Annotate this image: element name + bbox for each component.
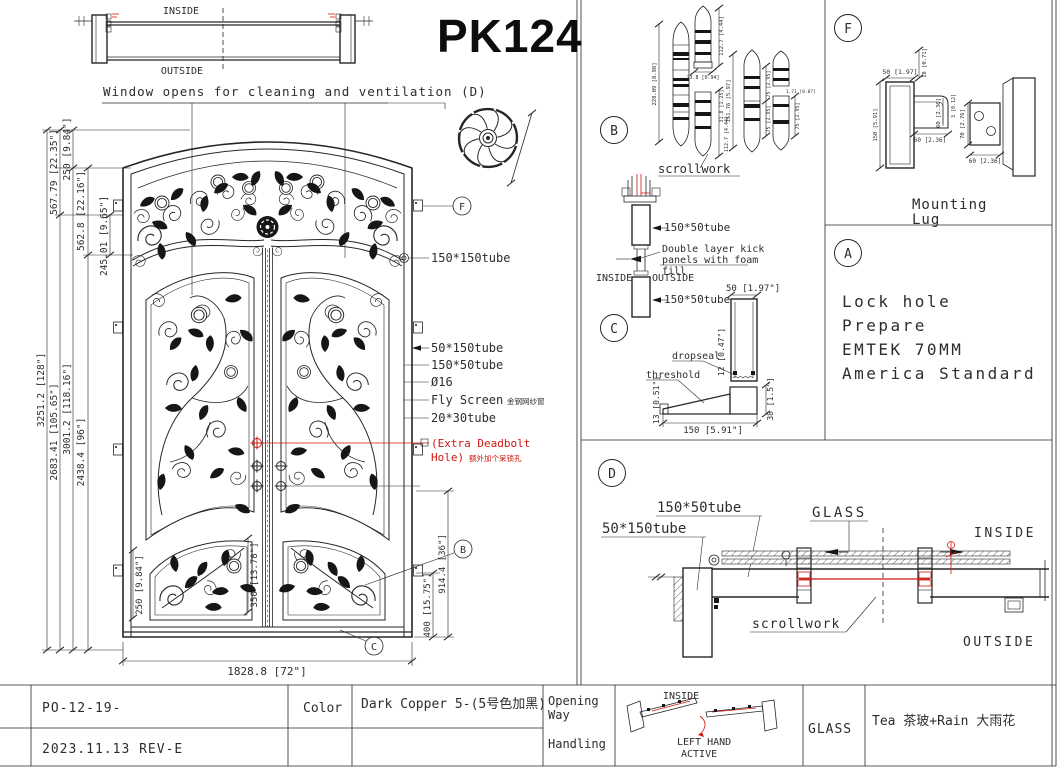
dim-245: 245.01 [9.65"] [99, 196, 110, 276]
callout-fly-screen: Fly Screen [431, 393, 503, 407]
panel-b-hinges: B 228.09 [8.98] 112.7 [4.44] 23.8 [0.94]… [601, 5, 816, 176]
hinge-dim-238: 23.8 [0.94] [686, 75, 719, 81]
tb-opening-1: Opening [548, 694, 599, 708]
deadbolt-note-line2: Hole) [431, 451, 464, 464]
panel-d-tube-v: 50*150tube [602, 521, 686, 537]
tb-color-value: Dark Copper 5-(5号色加黑) [361, 696, 546, 712]
panel-c-dim-12: 12 [0.47"] [717, 328, 726, 376]
marker-b: B [460, 545, 466, 556]
panel-c-dropseal: dropseal [672, 351, 720, 362]
tb-opening-diagram: INSIDE LEFT HAND ACTIVE [627, 691, 777, 760]
dim-400: 400 [15.75"] [423, 572, 433, 637]
panel-c-section: 150*50tube Double layer kick panels with… [596, 174, 780, 436]
panel-f-dim-60b: 60 [2.36] [914, 137, 947, 144]
tb-hand-1: LEFT HAND [677, 737, 731, 748]
plan-hinge-red-marks [112, 14, 335, 17]
panel-b-scrollwork: scrollwork [658, 162, 731, 176]
dim-567: 567.79 [22.35"] [49, 129, 60, 215]
panel-c-label: C [610, 322, 618, 337]
hinge-dim-171: 1.71 [0.07] [786, 89, 816, 95]
panel-f-dim-150: 150 [5.91] [873, 108, 879, 141]
callout-o16: Ø16 [431, 375, 453, 389]
panel-d-glass: GLASS [812, 505, 867, 521]
panel-f-dim-18: 18 [0.71] [922, 48, 928, 78]
title-block: PO-12-19- 2023.11.13 REV-E Color Dark Co… [0, 685, 1056, 766]
panel-d-tube-h: 150*50tube [657, 500, 741, 516]
panel-c-dim-13: 13 [0.51"] [652, 376, 661, 424]
hinge-dim-75b: 75 [2.95] [766, 105, 772, 132]
dim-250-top: 250 [9.84"] [62, 118, 73, 181]
marker-c: C [371, 642, 377, 653]
callout-50x150: 50*150tube [431, 341, 503, 355]
callout-150x150: 150*150tube [431, 251, 510, 265]
plan-inside-label: INSIDE [163, 6, 199, 17]
panel-a-line4: America Standard [842, 364, 1036, 383]
hinge-dim-75a: 75 [2.95] [766, 70, 772, 97]
plan-view: INSIDE OUTSIDE [74, 6, 373, 77]
lock-prep-marks [251, 437, 421, 493]
panel-d-outside: OUTSIDE [963, 635, 1035, 650]
dim-inner-250: 250 [9.84"] [135, 555, 145, 615]
hinge-dim-228: 228.09 [8.98] [652, 62, 658, 105]
panel-c-dim-38: 38 [1.5"] [766, 377, 775, 420]
tb-glass-label: GLASS [808, 722, 852, 737]
dim-562: 562.8 [22.16"] [76, 171, 87, 251]
plan-outside-label: OUTSIDE [161, 66, 203, 77]
deadbolt-note-line1: (Extra Deadbolt [431, 437, 530, 450]
panel-d-label: D [608, 467, 616, 482]
dim-914: 914.4 [36"] [438, 534, 448, 594]
tb-color-label: Color [303, 701, 342, 716]
panel-d-section: D 150*50tube 50*150tube GLASS INSIDE OUT… [599, 460, 1050, 658]
center-medallion [257, 216, 279, 238]
deadbolt-note-cn: 额外加个呆锁孔 [469, 453, 522, 463]
panel-f-caption-1: Mounting [912, 197, 987, 213]
callout-fly-screen-cn: 金钢网纱窗 [507, 396, 545, 406]
panel-f-label: F [844, 22, 852, 37]
panel-d-scrollwork: scrollwork [752, 617, 840, 632]
panel-c-outside: OUTSIDE [652, 273, 694, 284]
sheet-borders [577, 0, 1056, 766]
panel-a-line3: EMTEK 70MM [842, 340, 963, 359]
pinwheel-ornament [450, 100, 536, 186]
tb-po-number: PO-12-19- [42, 701, 121, 716]
panel-c-dim-150: 150 [5.91"] [683, 426, 743, 436]
tb-revision: 2023.11.13 REV-E [42, 742, 183, 757]
window-caption-text: Window opens for cleaning and ventilatio… [103, 84, 487, 99]
panel-a-lock-note: A Lock hole Prepare EMTEK 70MM America S… [835, 240, 1037, 384]
tb-hand-2: ACTIVE [681, 749, 717, 760]
dim-2683: 2683.41 [105.65"] [49, 383, 60, 480]
drawing-number: PK124 [437, 10, 583, 62]
panel-d-inside: INSIDE [974, 526, 1036, 541]
hinge-dim-75c: 75 [2.95] [795, 102, 801, 129]
cad-sheet: PK124 INSIDE OUTSIDE Window opens for cl… [0, 0, 1061, 768]
drawing-canvas: PK124 INSIDE OUTSIDE Window opens for cl… [0, 0, 1061, 768]
hinge-dim-151: 151.76 [5.97] [726, 79, 732, 122]
callout-20x30: 20*30tube [431, 411, 496, 425]
tb-opening-3: Handling [548, 737, 606, 751]
panel-f-dim-60a: 60 [2.36] [936, 98, 942, 128]
dim-width: 1828.8 [72"] [227, 665, 306, 678]
panel-f-dim-70: 70 [2.76] [960, 109, 966, 139]
panel-c-kick-note-1: Double layer kick [662, 244, 764, 255]
tb-glass-value: Tea 茶玻+Rain 大雨花 [872, 713, 1015, 729]
panel-b-label: B [610, 124, 618, 139]
dim-2438: 2438.4 [96"] [76, 418, 87, 487]
panel-a-line1: Lock hole [842, 292, 951, 311]
panel-f-dim-60c: 60 [2.36] [969, 158, 1002, 165]
callout-150x50: 150*50tube [431, 358, 503, 372]
dim-inner-350: 350 [13.78"] [250, 542, 260, 607]
panel-c-kick-note-2: panels with foam [662, 255, 758, 266]
panel-f-mounting-lug: F 50 [1.97] 18 [0.71] 150 [5.91] 60 [2.3… [835, 15, 1036, 229]
panel-f-dim-50: 50 [1.97] [882, 68, 917, 76]
hinge-dim-112a: 112.7 [4.44] [719, 16, 725, 56]
panel-c-inside: INSIDE [596, 273, 632, 284]
dim-total-height: 3251.2 [128"] [36, 353, 47, 427]
panel-f-dim-3: 3 [0.12] [951, 94, 957, 118]
door-elevation [114, 142, 423, 637]
panel-a-line2: Prepare [842, 316, 927, 335]
window-caption: Window opens for cleaning and ventilatio… [102, 84, 487, 295]
tb-opening-2: Way [548, 708, 570, 722]
panel-f-caption-2: Lug [912, 212, 940, 228]
marker-f: F [459, 202, 465, 213]
panel-a-label: A [844, 247, 852, 262]
tb-diagram-inside: INSIDE [663, 691, 699, 702]
panel-c-tube-bottom: 150*50tube [664, 293, 730, 306]
panel-c-tube-top: 150*50tube [664, 221, 730, 234]
dim-3001: 3001.2 [118.16"] [62, 363, 73, 455]
